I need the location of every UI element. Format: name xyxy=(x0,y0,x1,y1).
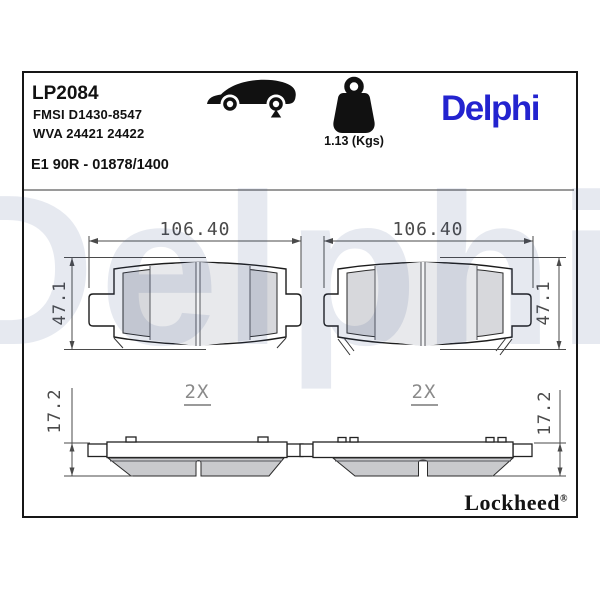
pad-front-view-right xyxy=(324,262,531,355)
thickness-dim-label-right: 17.2 xyxy=(535,383,555,443)
height-dim-label-left: 47.1 xyxy=(50,273,70,333)
lockheed-logo-text: Lockheed xyxy=(464,490,560,515)
quantity-label-right: 2X xyxy=(399,381,449,403)
pad-side-view-left xyxy=(88,437,303,476)
registered-mark: ® xyxy=(560,494,568,505)
width-dim-label-left: 106.40 xyxy=(145,219,245,240)
pad-side-view-right xyxy=(300,438,532,477)
pad-front-view-left xyxy=(89,262,301,348)
height-dim-label-right: 47.1 xyxy=(534,273,554,333)
width-dim-label-right: 106.40 xyxy=(378,219,478,240)
brake-pad-datasheet: LP2084 FMSI D1430-8547 WVA 24421 24422 E… xyxy=(0,0,600,600)
quantity-underline-right xyxy=(411,404,438,406)
quantity-label-left: 2X xyxy=(172,381,222,403)
lockheed-logo: Lockheed® xyxy=(464,490,568,516)
thickness-dim-label-left: 17.2 xyxy=(45,381,65,441)
quantity-underline-left xyxy=(184,404,211,406)
